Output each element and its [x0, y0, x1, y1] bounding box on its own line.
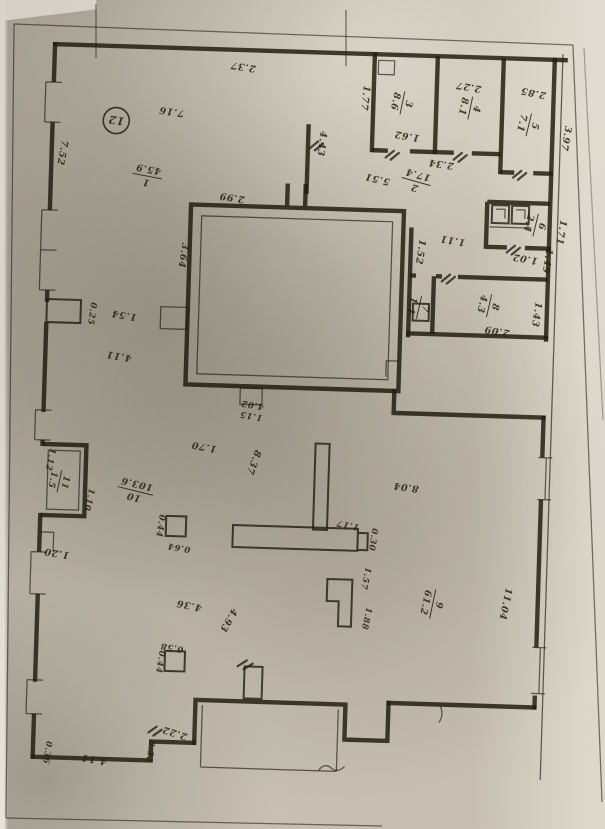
dimension-label: 8.37 — [244, 448, 263, 476]
dimension-label: 7.52 — [54, 139, 70, 166]
svg-text:1.17: 1.17 — [335, 517, 360, 532]
room-number-label: 57.1 — [513, 110, 542, 139]
svg-text:5: 5 — [528, 121, 540, 131]
partition-lines — [35, 191, 532, 707]
svg-text:7: 7 — [419, 304, 431, 313]
svg-text:4.43: 4.43 — [315, 130, 329, 157]
svg-text:2.37: 2.37 — [230, 59, 258, 74]
svg-text:1: 1 — [141, 176, 150, 188]
room-number-label: 217.4 — [399, 165, 434, 197]
svg-text:11.04: 11.04 — [496, 587, 513, 621]
dimension-label: 0.64 — [167, 540, 191, 554]
svg-text:0.64: 0.64 — [167, 540, 191, 554]
thin-detail-lines — [32, 38, 563, 780]
svg-text:2.34: 2.34 — [428, 156, 456, 171]
svg-text:1.52: 1.52 — [413, 239, 428, 266]
dimension-label: 1.71 — [553, 219, 568, 246]
svg-text:1.43: 1.43 — [529, 301, 544, 328]
dimension-label: 1.57 — [358, 566, 373, 591]
svg-text:12: 12 — [107, 112, 125, 127]
svg-text:7.1: 7.1 — [514, 113, 529, 133]
scanned-floorplan-photo: 122.377.167.52145.92.993.641.774.435.512… — [0, 0, 605, 829]
window-lines — [26, 82, 564, 730]
svg-text:2.4: 2.4 — [521, 212, 536, 233]
dimension-label: 5.51 — [364, 170, 391, 187]
svg-text:1.88: 1.88 — [359, 606, 374, 631]
dimension-label: 4.93 — [217, 606, 239, 634]
l-shaped-pier — [326, 579, 352, 627]
dimension-label: 0.44 — [153, 650, 166, 674]
svg-text:0.36: 0.36 — [40, 740, 53, 764]
dimension-label: 1.12 — [43, 447, 58, 472]
svg-text:5.51: 5.51 — [364, 170, 391, 187]
svg-text:4.36: 4.36 — [175, 597, 202, 613]
dimension-label: 0.32 — [143, 740, 156, 764]
room-number-label: 48.1 — [455, 94, 484, 122]
svg-text:2.27: 2.27 — [455, 79, 483, 94]
dimension-label: 1.02 — [512, 251, 539, 266]
svg-text:3: 3 — [402, 99, 414, 108]
dimension-label: 1.70 — [191, 439, 218, 455]
svg-text:2.99: 2.99 — [219, 190, 247, 205]
room-number-label: 10103.6 — [115, 474, 156, 506]
dimension-label: 1.52 — [413, 239, 428, 266]
svg-text:1.1: 1.1 — [404, 296, 419, 316]
svg-text:1.62: 1.62 — [393, 128, 420, 143]
inner-void-block — [185, 204, 404, 391]
building-mark-label: 12 — [101, 106, 131, 136]
svg-text:8.6: 8.6 — [388, 91, 403, 111]
svg-text:4.14: 4.14 — [81, 752, 108, 767]
dimension-label: 0.36 — [40, 740, 53, 764]
dimension-label: 4.43 — [315, 130, 329, 157]
room-number-label: 84.3 — [474, 291, 503, 319]
dimension-label: 1.62 — [393, 128, 420, 143]
dimension-label: 4.11 — [105, 348, 132, 363]
dimension-label: 1.88 — [359, 606, 374, 631]
room-number-label: 145.9 — [130, 161, 164, 191]
svg-text:7.52: 7.52 — [54, 139, 70, 166]
svg-text:2.85: 2.85 — [520, 85, 548, 101]
svg-text:1.57: 1.57 — [358, 566, 373, 591]
dimension-label: 1.43 — [529, 301, 544, 328]
room-number-label: 38.6 — [387, 89, 416, 117]
svg-text:4.3: 4.3 — [474, 294, 489, 314]
svg-text:8: 8 — [489, 302, 501, 311]
svg-text:0.25: 0.25 — [85, 301, 98, 325]
svg-text:2.22: 2.22 — [161, 723, 190, 742]
svg-text:9: 9 — [432, 601, 444, 610]
svg-text:8.37: 8.37 — [244, 448, 263, 476]
svg-text:1.71: 1.71 — [553, 219, 568, 246]
svg-text:1.11: 1.11 — [439, 233, 466, 248]
floorplan-drawing: 122.377.167.52145.92.993.641.774.435.512… — [0, 0, 605, 829]
svg-text:103.6: 103.6 — [120, 474, 154, 492]
t-partition-stem — [313, 444, 330, 530]
dimension-label: 2.85 — [520, 85, 548, 101]
svg-text:0.30: 0.30 — [366, 527, 379, 551]
svg-text:1.54: 1.54 — [111, 307, 138, 322]
dimension-label: 2.27 — [455, 79, 483, 94]
svg-text:0.44: 0.44 — [153, 514, 166, 538]
svg-text:8.04: 8.04 — [393, 480, 420, 494]
svg-text:1.70: 1.70 — [191, 439, 218, 455]
dimension-label: 0.44 — [153, 514, 166, 538]
svg-text:1.77: 1.77 — [358, 85, 372, 112]
room-number-label: 111.5 — [45, 468, 72, 495]
svg-text:1.12: 1.12 — [43, 447, 58, 472]
vent-shaft — [378, 60, 394, 74]
dimension-label: 1.20 — [43, 545, 70, 560]
dimension-label: 4.14 — [81, 752, 108, 767]
svg-text:7.16: 7.16 — [158, 104, 185, 119]
svg-text:2: 2 — [410, 181, 421, 194]
wall-pier — [46, 299, 81, 323]
dimension-label: 1.49 — [540, 248, 555, 275]
svg-text:0.44: 0.44 — [153, 650, 166, 674]
svg-text:1.20: 1.20 — [43, 545, 70, 560]
dimension-label: 2.99 — [219, 190, 247, 205]
dimension-label: 1.77 — [358, 85, 372, 112]
dimension-label: 4.36 — [175, 597, 202, 613]
dimension-label: 0.30 — [366, 527, 379, 551]
break-squiggle-icon — [439, 707, 442, 723]
dimension-label: 2.22 — [161, 723, 190, 742]
entrance-bay-inner — [200, 705, 338, 771]
svg-text:4.93: 4.93 — [217, 606, 239, 634]
svg-text:4.11: 4.11 — [105, 348, 132, 363]
svg-text:1.02: 1.02 — [512, 251, 539, 266]
dimension-label: 2.37 — [230, 59, 258, 74]
dimension-label: 8.04 — [393, 480, 420, 494]
building-walls — [31, 42, 568, 775]
room-number-label: 961.2 — [417, 587, 447, 621]
svg-text:4: 4 — [470, 105, 482, 114]
dimension-label: 1.17 — [335, 517, 360, 532]
svg-text:6: 6 — [535, 222, 547, 232]
dimension-label: 1.54 — [111, 307, 138, 322]
door-jamb-stub — [244, 666, 263, 699]
dimension-label: 11.04 — [496, 587, 513, 621]
svg-text:0.32: 0.32 — [143, 740, 156, 764]
dimension-label: 0.25 — [85, 301, 98, 325]
dimension-label: 2.34 — [428, 156, 456, 171]
svg-text:1.49: 1.49 — [540, 248, 555, 275]
dimension-label: 7.16 — [158, 104, 185, 119]
svg-text:8.1: 8.1 — [456, 96, 471, 116]
column — [166, 516, 187, 537]
dimension-label: 1.11 — [439, 233, 466, 248]
